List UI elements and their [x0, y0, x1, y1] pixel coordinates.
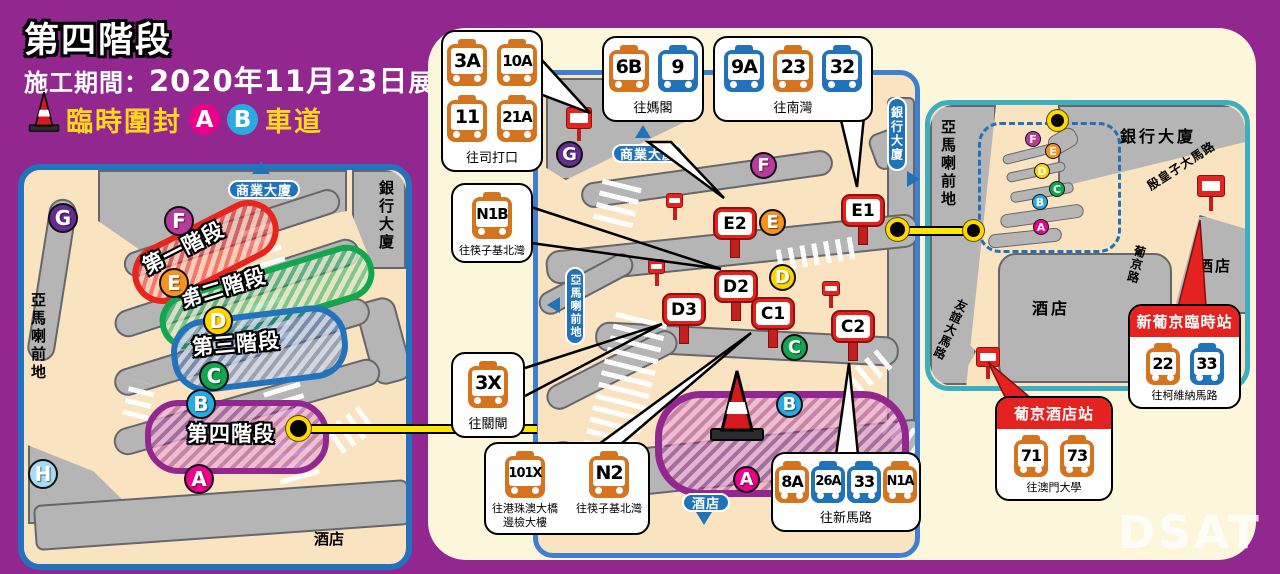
commercial-building-pill: 商業大廈	[612, 144, 684, 163]
lane-marker-f: F	[164, 206, 194, 236]
dsat-watermark: DSAT	[1118, 506, 1262, 559]
down-arrow-icon	[696, 512, 712, 525]
bus-stop-marker	[666, 193, 683, 220]
bus-route-3a: 3A	[447, 39, 487, 89]
bus-route-33: 33	[847, 461, 881, 505]
bus-stop-marker	[566, 107, 592, 141]
lane-marker-e: E	[159, 268, 189, 298]
callout-magang: 6B 9 往媽閣	[602, 36, 704, 122]
lane-marker-g: G	[556, 141, 583, 168]
callout-sidatou: 3A 10A 11 21A 往司打口	[441, 30, 543, 172]
callout-night-routes: 101X 往港珠澳大橋 邊檢大樓 N2 往筷子基北灣	[484, 442, 650, 535]
construction-period: 施工期間：2020年11月23日展開	[24, 58, 458, 100]
lane-marker-g: G	[48, 203, 78, 233]
bank-building-label: 銀行大廈	[1120, 123, 1196, 147]
page-title: 第四階段	[24, 12, 172, 63]
bus-route-71: 71	[1014, 435, 1048, 479]
left-arrow-icon	[547, 297, 560, 313]
mini-marker-d: D	[1034, 163, 1050, 179]
map-connector-line	[897, 226, 975, 236]
destination-label: 往關閘	[468, 413, 507, 432]
lane-a-badge: A	[189, 104, 220, 135]
lane-marker-a: A	[184, 464, 214, 494]
zone-connector-dot	[290, 420, 307, 437]
bus-route-6b: 6B	[609, 45, 649, 95]
callout-nanwan: 9A 23 32 往南灣	[713, 36, 873, 122]
hotel-right-label: 酒店	[1198, 255, 1232, 276]
bus-stop-marker	[822, 281, 840, 308]
bus-route-9a: 9A	[724, 45, 764, 95]
lane-marker-d: D	[203, 306, 233, 336]
lane-marker-c: C	[199, 361, 229, 391]
roadworks-notice-poster: 第四階段 施工期間：2020年11月23日展開 臨時圍封 A B 車道 DSAT	[0, 0, 1280, 574]
praca-pill: 亞馬喇前地	[565, 267, 585, 345]
bus-route-73: 73	[1060, 435, 1094, 479]
bus-stop-marker-hotel-lisboa	[976, 347, 1000, 379]
bus-stop-marker-grand-lisboa	[1197, 175, 1225, 211]
bus-route-10a: 10A	[497, 39, 537, 89]
lane-marker-e: E	[759, 209, 786, 236]
praca-label: 亞馬喇前地	[28, 292, 49, 382]
bus-route-n2: N2	[589, 451, 629, 501]
callout-n1b: N1B 往筷子基北灣	[451, 183, 533, 263]
commercial-building-pill: 商業大廈	[228, 180, 300, 199]
right-arrow-icon	[907, 171, 920, 187]
station-name: 葡京酒店站	[997, 398, 1111, 429]
up-arrow-icon	[635, 125, 651, 138]
hotel-pill: 酒店	[682, 493, 730, 512]
station-name: 新葡京臨時站	[1130, 306, 1239, 337]
destination-label: 往筷子基北灣	[459, 244, 525, 257]
bus-route-23: 23	[773, 45, 813, 95]
bus-route-n1a: N1A	[883, 461, 917, 505]
traffic-cone-icon	[26, 86, 62, 142]
bus-stop-marker	[648, 259, 665, 286]
destination-label: 往澳門大學	[1027, 481, 1082, 494]
bus-stop-c1: C1	[751, 297, 795, 348]
bus-stop-e2: E2	[713, 207, 757, 258]
bus-route-21a: 21A	[497, 95, 537, 145]
hotel-label: 酒店	[314, 528, 344, 549]
mini-marker-a: A	[1033, 219, 1049, 235]
lane-marker-b: B	[776, 391, 803, 418]
mini-marker-c: C	[1049, 181, 1065, 197]
phase4-label: 第四階段	[187, 418, 275, 448]
period-date: 2020年11月23日	[149, 64, 408, 98]
lane-marker-d: D	[769, 264, 796, 291]
callout-grand-lisboa-station: 新葡京臨時站 22 33 往柯維納馬路	[1128, 304, 1241, 409]
lane-closure-legend: 臨時圍封 A B 車道	[66, 100, 323, 139]
bus-stop-c2: C2	[831, 310, 875, 361]
bank-building-pill: 銀行大廈	[887, 97, 907, 171]
mini-marker-f: F	[1025, 131, 1041, 147]
destination-label: 往柯維納馬路	[1152, 389, 1218, 402]
bus-route-22: 22	[1146, 343, 1180, 387]
bus-stop-d3: D3	[662, 293, 706, 344]
lane-b-badge: B	[227, 104, 258, 135]
bus-route-3x: 3X	[468, 361, 508, 411]
lane-marker-a: A	[733, 466, 760, 493]
mini-marker-e: E	[1045, 143, 1061, 159]
destination-label: 往司打口	[466, 147, 518, 166]
up-arrow-icon	[252, 161, 270, 174]
callout-xinmalu: 8A 26A 33 N1A 往新馬路	[771, 452, 921, 532]
bus-route-9: 9	[658, 45, 698, 95]
lane-marker-h: H	[28, 459, 58, 489]
bus-route-32: 32	[822, 45, 862, 95]
bus-route-33: 33	[1190, 343, 1224, 387]
praca-label: 亞馬喇前地	[938, 119, 959, 209]
destination-label: 往南灣	[773, 97, 812, 116]
destination-label: 往新馬路	[820, 507, 872, 526]
bus-route-26a: 26A	[811, 461, 845, 505]
destination-label: 往筷子基北灣	[576, 502, 642, 515]
destination-label: 邊檢大樓	[503, 516, 547, 529]
hotel-center-label: 酒店	[1032, 295, 1070, 319]
lane-marker-b: B	[186, 389, 216, 419]
traffic-cone-icon	[705, 368, 769, 448]
map-connector-dot-left	[890, 222, 905, 237]
map-connector-dot-right	[967, 224, 980, 237]
location-dot	[1051, 114, 1064, 127]
destination-label: 往港珠澳大橋	[492, 502, 558, 515]
lane-marker-f: F	[750, 152, 777, 179]
closure-label: 臨時圍封	[66, 100, 182, 139]
bus-route-n1b: N1B	[472, 192, 512, 242]
bus-route-8a: 8A	[775, 461, 809, 505]
mini-marker-b: B	[1032, 194, 1048, 210]
bus-route-11: 11	[447, 95, 487, 145]
bank-building-label: 銀行大廈	[376, 180, 397, 252]
bus-stop-e1: E1	[841, 194, 885, 245]
callout-3x: 3X 往關閘	[451, 352, 525, 438]
bus-route-101x: 101X	[505, 451, 545, 501]
overview-map-panel: 第一階段 第二階段 第三階段 第四階段 酒店 G F E D C B A H 商…	[18, 164, 412, 570]
closure-suffix: 車道	[265, 100, 323, 139]
destination-label: 往媽閣	[633, 97, 672, 116]
callout-hotel-lisboa-station: 葡京酒店站 71 73 往澳門大學	[995, 396, 1113, 501]
